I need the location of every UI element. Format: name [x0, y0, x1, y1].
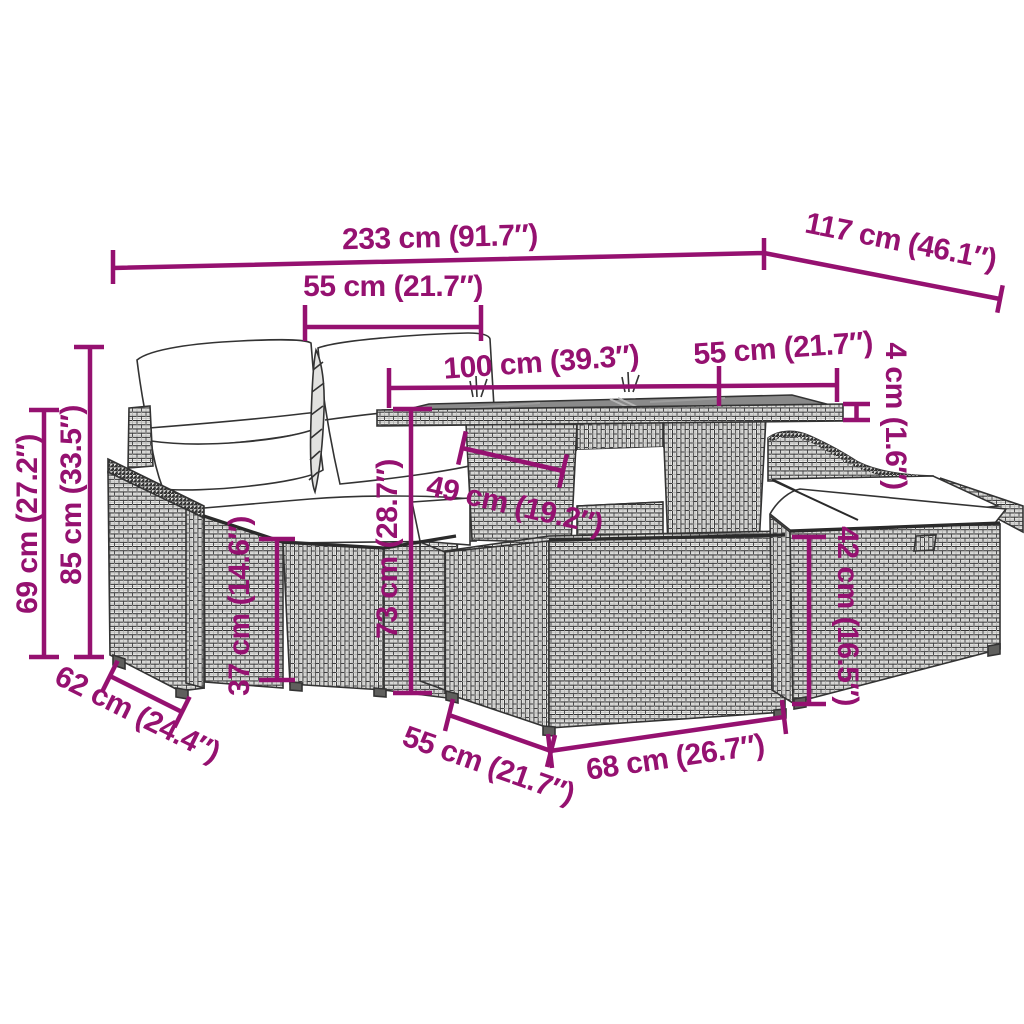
svg-text:233 cm (91.7″): 233 cm (91.7″)	[342, 219, 539, 256]
svg-text:69 cm (27.2″): 69 cm (27.2″)	[11, 434, 44, 614]
svg-text:37 cm (14.6″): 37 cm (14.6″)	[223, 516, 256, 696]
svg-text:42 cm (16.5″): 42 cm (16.5″)	[831, 526, 864, 706]
svg-text:4 cm (1.6″): 4 cm (1.6″)	[879, 342, 912, 489]
svg-text:55 cm (21.7″): 55 cm (21.7″)	[303, 270, 483, 303]
svg-text:73 cm (28.7″): 73 cm (28.7″)	[371, 459, 404, 639]
svg-text:85 cm (33.5″): 85 cm (33.5″)	[55, 405, 88, 585]
